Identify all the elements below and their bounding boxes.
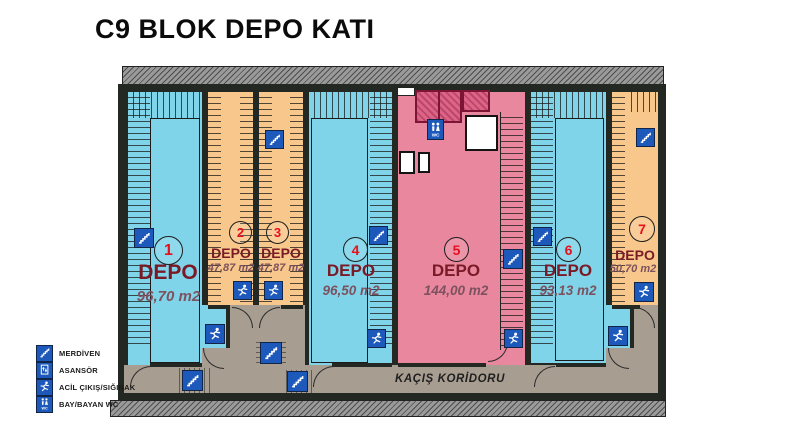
room-name-label: DEPO <box>527 261 609 281</box>
room-name-label: DEPO <box>206 245 256 261</box>
elevator-shaft <box>465 115 498 151</box>
floor-plan-page: C9 BLOK DEPO KATI <box>0 0 800 428</box>
emergency-exit-icon <box>367 329 386 348</box>
exterior-wall-hatch-bottom <box>110 400 666 417</box>
legend-label: ACİL ÇIKIŞ/SIĞINAK <box>59 383 135 392</box>
stairs-icon <box>36 345 53 362</box>
legend-item-elevator: ASANSÖR <box>36 362 135 378</box>
legend-item-stairs: MERDİVEN <box>36 345 135 361</box>
room-area-label: 50,70 m2 <box>602 263 664 275</box>
stairs-icon <box>369 226 388 245</box>
room-area-label: 47,87 m2 <box>252 262 310 274</box>
exterior-wall-hatch-top <box>122 66 664 85</box>
room-name-label: DEPO <box>609 247 661 263</box>
emergency-exit-icon <box>36 379 53 396</box>
wall <box>150 363 202 367</box>
wc-cubicles-2 <box>462 90 490 112</box>
emergency-exit-icon <box>634 282 654 302</box>
wall <box>226 305 230 348</box>
emergency-exit-icon <box>608 326 628 346</box>
room-number-badge: 4 <box>343 237 368 262</box>
legend: MERDİVEN ASANSÖR ACİL ÇIKIŞ/SIĞINAK BAY/… <box>36 345 135 412</box>
wc-icon <box>36 396 53 413</box>
stairs-icon <box>636 128 655 147</box>
wall <box>556 363 606 367</box>
wall <box>208 305 230 309</box>
legend-label: ASANSÖR <box>59 366 98 375</box>
room-area-label: 96,70 m2 <box>121 288 216 305</box>
stairs-icon <box>182 370 203 391</box>
stairs-icon <box>134 228 154 248</box>
room-number-badge: 2 <box>229 221 252 244</box>
emergency-exit-icon <box>264 281 283 300</box>
room-name-label: DEPO <box>256 245 306 261</box>
elevator-icon <box>36 362 53 379</box>
room-area-label: 144,00 m2 <box>411 283 501 298</box>
door-opening <box>397 87 415 96</box>
shaft-small <box>399 151 415 174</box>
stairs-icon <box>503 249 523 269</box>
room-number-badge: 7 <box>629 216 655 242</box>
escape-corridor-label: KAÇIŞ KORİDORU <box>370 373 530 385</box>
room-name-label: DEPO <box>312 261 390 281</box>
wall <box>398 363 486 367</box>
room-number-badge: 3 <box>266 221 289 244</box>
wc-icon <box>427 119 444 140</box>
legend-label: BAY/BAYAN WC <box>59 400 119 409</box>
stairs-icon <box>265 130 284 149</box>
emergency-exit-icon <box>205 324 225 344</box>
shaft-small-2 <box>418 152 430 173</box>
emergency-exit-icon <box>233 281 252 300</box>
room-number-badge: 5 <box>444 237 469 262</box>
emergency-exit-icon <box>504 329 523 348</box>
legend-item-wc: BAY/BAYAN WC <box>36 396 135 412</box>
legend-item-emergency-exit: ACİL ÇIKIŞ/SIĞINAK <box>36 379 135 395</box>
room-depo-5 <box>398 92 525 365</box>
wall <box>332 363 392 367</box>
room-area-label: 93,13 m2 <box>523 283 613 298</box>
stairs-icon <box>287 371 308 392</box>
room-name-label: DEPO <box>415 261 497 281</box>
legend-label: MERDİVEN <box>59 349 100 358</box>
wall <box>281 305 303 309</box>
room-area-label: 96,50 m2 <box>308 283 394 298</box>
room-number-badge: 6 <box>556 237 581 262</box>
room-name-label: DEPO <box>128 261 208 285</box>
stairs-icon <box>260 342 282 364</box>
page-title: C9 BLOK DEPO KATI <box>95 14 375 45</box>
stairs-icon <box>533 227 552 246</box>
